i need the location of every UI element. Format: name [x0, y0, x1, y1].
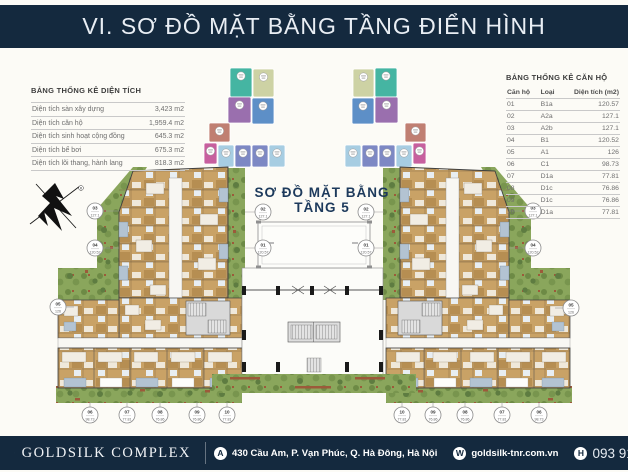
svg-text:126: 126	[568, 310, 574, 314]
svg-text:76.86: 76.86	[429, 417, 438, 421]
address-icon: A	[214, 447, 227, 460]
svg-text:07: 07	[124, 410, 130, 415]
mini-block-magenta	[204, 143, 217, 164]
svg-text:04: 04	[92, 243, 98, 248]
unit-table-header: Căn hộ Loại Diện tích (m2)	[506, 87, 620, 99]
svg-text:10: 10	[399, 410, 405, 415]
svg-text:01: 01	[363, 243, 369, 248]
unit-label-06: 0698.73	[531, 402, 547, 423]
mini-block-purple	[375, 97, 398, 123]
unit-table-row: 07D1a77.81	[506, 171, 620, 183]
svg-text:120.52: 120.52	[528, 250, 539, 254]
svg-text:SƠ ĐỒ MẶT BẰNG: SƠ ĐỒ MẶT BẰNG	[254, 185, 389, 200]
svg-text:127.1: 127.1	[362, 214, 371, 218]
col-unit: Căn hộ	[507, 89, 541, 96]
unit-label-07: 0777.81	[494, 402, 510, 423]
brand-name: GOLDSILK COMPLEX	[22, 445, 191, 462]
left-wing	[56, 167, 245, 403]
footer-address: A 430 Cầu Am, P. Vạn Phúc, Q. Hà Đông, H…	[206, 447, 445, 460]
svg-text:120.57: 120.57	[361, 250, 372, 254]
area-table-row: Diện tích bể bơi675.3 m2	[31, 144, 185, 158]
area-table-row: Diện tích căn hộ1,959.4 m2	[31, 117, 185, 131]
svg-text:126: 126	[55, 309, 61, 313]
area-table-row: Diện tích lõi thang, hành lang818.3 m2	[31, 157, 185, 171]
svg-text:08: 08	[157, 410, 163, 415]
svg-text:77.81: 77.81	[123, 417, 132, 421]
mini-block-magenta	[413, 143, 426, 164]
svg-text:127.1: 127.1	[91, 213, 100, 217]
mini-block-periwinkle	[362, 145, 378, 167]
unit-label-06: 0698.73	[82, 402, 98, 423]
mini-block-purple	[228, 97, 251, 123]
mini-block-salmon	[209, 123, 230, 142]
footer-website: W goldsilk-tnr.com.vn	[445, 447, 566, 460]
unit-table-row: 06C198.73	[506, 159, 620, 171]
north-arrow-icon: R	[30, 183, 83, 231]
unit-label-07: 0777.81	[119, 402, 135, 423]
unit-table-row: 03A2b127.1	[506, 123, 620, 135]
area-statistics-table: BẢNG THỐNG KÊ DIỆN TÍCH Diện tích sàn xâ…	[31, 86, 185, 171]
unit-label-10: 1077.81	[219, 402, 235, 423]
svg-text:98.73: 98.73	[86, 417, 95, 421]
mini-block-salmon	[405, 123, 426, 142]
area-table-row: Diện tích sàn xây dựng3,423 m2	[31, 103, 185, 117]
col-area: Diện tích (m2)	[570, 89, 619, 96]
unit-label-08: 0876.86	[152, 402, 168, 423]
floor-plan-graphic: R	[0, 0, 628, 472]
hotline-icon: H	[574, 447, 587, 460]
svg-text:05: 05	[55, 302, 61, 307]
svg-text:09: 09	[430, 410, 436, 415]
footer-bar: GOLDSILK COMPLEX A 430 Cầu Am, P. Vạn Ph…	[0, 436, 628, 470]
unit-table-row: 10D1a77.81	[506, 207, 620, 219]
brochure-page: VI. SƠ ĐỒ MẶT BẰNG TẦNG ĐIỂN HÌNH	[0, 0, 628, 472]
svg-text:76.86: 76.86	[156, 417, 165, 421]
svg-text:08: 08	[462, 410, 468, 415]
mini-block-blue	[352, 98, 374, 124]
area-table-rows: Diện tích sàn xây dựng3,423 m2Diện tích …	[31, 102, 185, 171]
goldsilk-logo-icon	[14, 440, 15, 466]
svg-text:120.57: 120.57	[258, 250, 269, 254]
svg-text:03: 03	[92, 206, 98, 211]
unit-label-02: 02127.1	[358, 204, 384, 220]
unit-table-row: 05A1126	[506, 147, 620, 159]
unit-table-row: 02A2a127.1	[506, 111, 620, 123]
svg-text:120.52: 120.52	[90, 250, 101, 254]
svg-text:77.81: 77.81	[223, 417, 232, 421]
svg-text:77.81: 77.81	[498, 417, 507, 421]
mini-block-khaki	[253, 69, 274, 97]
svg-text:02: 02	[363, 207, 369, 212]
mini-block-lightblue	[269, 145, 285, 167]
unit-label-09: 0976.86	[425, 402, 441, 423]
unit-statistics-table: BẢNG THỐNG KÊ CĂN HỘ Căn hộ Loại Diện tí…	[506, 73, 620, 219]
mini-block-lightblue	[345, 145, 361, 167]
unit-table-row: 09D1c76.86	[506, 195, 620, 207]
svg-text:10: 10	[224, 410, 230, 415]
unit-table-title: BẢNG THỐNG KÊ CĂN HỘ	[506, 73, 620, 82]
mini-block-khaki	[353, 69, 374, 97]
svg-text:76.86: 76.86	[193, 417, 202, 421]
unit-table-row: 08D1c76.86	[506, 183, 620, 195]
unit-label-02: 02127.1	[245, 204, 271, 220]
mini-block-teal	[230, 68, 252, 97]
unit-label-10: 1077.81	[394, 402, 410, 423]
svg-text:76.86: 76.86	[461, 417, 470, 421]
svg-text:09: 09	[194, 410, 200, 415]
mini-block-periwinkle	[379, 145, 395, 167]
unit-label-01: 01120.57	[245, 240, 271, 256]
svg-text:07: 07	[499, 410, 505, 415]
area-table-title: BẢNG THỐNG KÊ DIỆN TÍCH	[31, 86, 185, 95]
mini-block-blue	[252, 98, 274, 124]
mini-block-teal	[375, 68, 397, 97]
address-text: 430 Cầu Am, P. Vạn Phúc, Q. Hà Đông, Hà …	[232, 448, 437, 459]
unit-table-row: 04B1120.52	[506, 135, 620, 147]
svg-text:98.73: 98.73	[535, 417, 544, 421]
svg-text:127.1: 127.1	[259, 214, 268, 218]
svg-text:06: 06	[536, 410, 542, 415]
svg-text:TẦNG 5: TẦNG 5	[294, 200, 350, 215]
unit-label-09: 0976.86	[189, 402, 205, 423]
unit-label-08: 0876.86	[457, 402, 473, 423]
svg-text:04: 04	[530, 243, 536, 248]
unit-label-01: 01120.57	[358, 240, 384, 256]
mini-block-lightblue	[396, 145, 412, 167]
svg-text:77.81: 77.81	[398, 417, 407, 421]
unit-table-row: 01B1a120.57	[506, 99, 620, 111]
hotline-text: 093 915 8868	[592, 446, 628, 461]
website-icon: W	[453, 447, 466, 460]
col-type: Loại	[541, 89, 570, 96]
brand: GOLDSILK COMPLEX	[0, 440, 205, 466]
stacking-diagrams	[204, 68, 426, 167]
mini-block-periwinkle	[252, 145, 268, 167]
website-text: goldsilk-tnr.com.vn	[471, 448, 558, 459]
svg-text:06: 06	[87, 410, 93, 415]
footer-hotline: H 093 915 8868	[566, 446, 628, 461]
page-title: VI. SƠ ĐỒ MẶT BẰNG TẦNG ĐIỂN HÌNH	[82, 13, 545, 40]
page-header: VI. SƠ ĐỒ MẶT BẰNG TẦNG ĐIỂN HÌNH	[0, 5, 628, 48]
svg-text:02: 02	[260, 207, 266, 212]
mini-block-lightblue	[218, 145, 234, 167]
svg-text:05: 05	[568, 303, 574, 308]
svg-text:01: 01	[260, 243, 266, 248]
mini-block-periwinkle	[235, 145, 251, 167]
area-table-row: Diện tích sinh hoạt cộng đồng645.3 m2	[31, 130, 185, 144]
unit-table-rows: 01B1a120.5702A2a127.103A2b127.104B1120.5…	[506, 99, 620, 219]
